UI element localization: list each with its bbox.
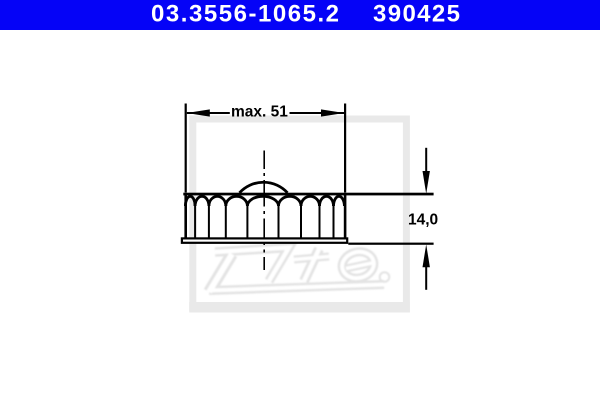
svg-text:390425: 390425 xyxy=(373,1,460,28)
svg-text:max. 51: max. 51 xyxy=(231,104,288,121)
svg-text:03.3556-1065.2: 03.3556-1065.2 xyxy=(151,1,339,28)
svg-text:14,0: 14,0 xyxy=(408,212,438,229)
